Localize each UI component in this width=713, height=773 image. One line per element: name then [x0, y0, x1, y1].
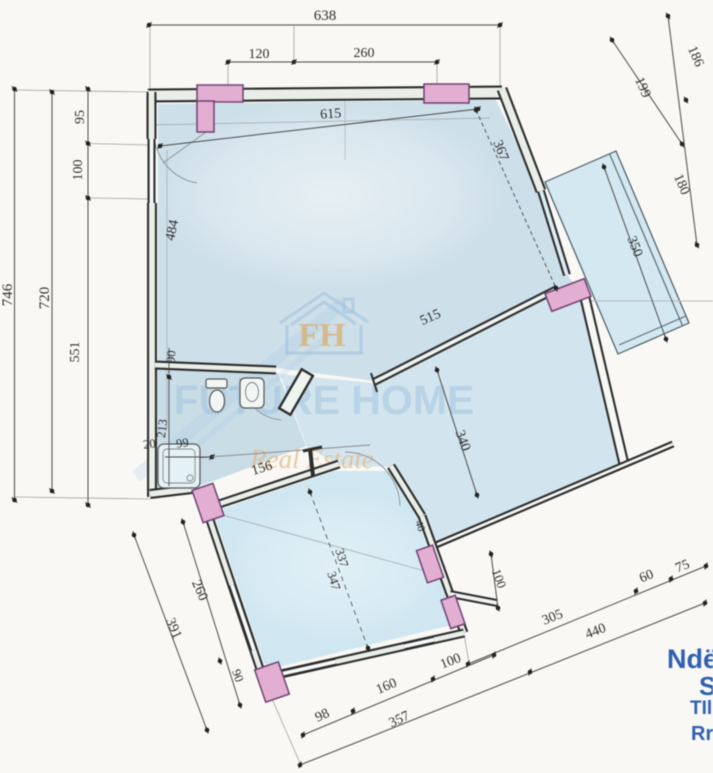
svg-text:720: 720	[37, 287, 53, 310]
svg-text:20: 20	[142, 436, 156, 452]
svg-text:90: 90	[163, 350, 178, 364]
svg-text:746: 746	[0, 283, 16, 306]
svg-text:Ndërt: Ndërt	[667, 644, 713, 674]
svg-text:615: 615	[320, 106, 342, 122]
svg-text:120: 120	[249, 47, 270, 62]
svg-text:551: 551	[68, 342, 83, 363]
svg-text:S: S	[699, 671, 713, 701]
svg-text:213: 213	[154, 418, 170, 438]
svg-text:TIl: TIl	[690, 698, 712, 719]
svg-text:638: 638	[314, 8, 337, 24]
svg-text:95: 95	[73, 110, 88, 124]
svg-text:100: 100	[71, 160, 86, 181]
svg-text:99: 99	[175, 435, 189, 451]
svg-text:260: 260	[354, 46, 375, 61]
svg-text:FH: FH	[298, 317, 345, 354]
svg-text:Rr: Rr	[691, 723, 713, 745]
